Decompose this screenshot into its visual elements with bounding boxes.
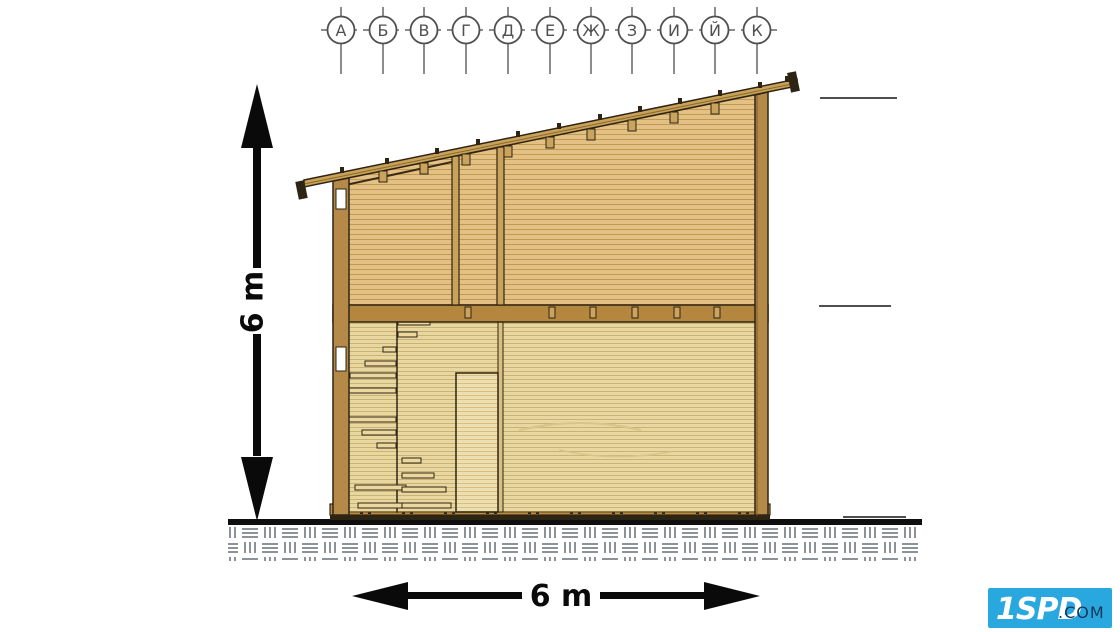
stair-tread bbox=[362, 430, 396, 435]
left-wall-window-upper bbox=[336, 189, 346, 209]
dimension-shaft bbox=[253, 146, 261, 268]
arrow-down-icon bbox=[241, 457, 273, 521]
grid-label: Е bbox=[545, 21, 555, 40]
stair-tread bbox=[348, 417, 396, 422]
stair-tread bbox=[402, 503, 451, 508]
lower-wall-panel bbox=[349, 322, 755, 512]
stair-tread bbox=[398, 332, 417, 337]
dimension-shaft bbox=[253, 334, 261, 456]
stair-tread bbox=[402, 473, 434, 478]
ground-hatch bbox=[228, 527, 922, 561]
stair-tread bbox=[402, 458, 421, 463]
grid-label: З bbox=[627, 21, 637, 40]
stair-tread bbox=[365, 361, 396, 366]
stair-tread bbox=[347, 388, 396, 393]
stair-tread bbox=[402, 487, 446, 492]
grid-marker-zh: Ж bbox=[578, 7, 605, 74]
grid-label: И bbox=[668, 21, 680, 40]
logo-suffix-text: .COM bbox=[1058, 603, 1105, 622]
grid-label: К bbox=[751, 21, 763, 40]
horizontal-dimension: 6 m bbox=[352, 579, 760, 614]
grid-label: Ж bbox=[582, 21, 599, 40]
dimension-shaft bbox=[600, 592, 706, 599]
arrow-right-icon bbox=[704, 582, 760, 610]
grid-axis-row: А Б В Г Д Е Ж bbox=[321, 7, 777, 74]
grid-label: Б bbox=[378, 21, 389, 40]
grid-label: Д bbox=[502, 21, 515, 40]
grid-marker-v: В bbox=[411, 7, 438, 74]
ground bbox=[228, 519, 922, 561]
upper-wall-middle-panel bbox=[459, 148, 497, 305]
stair-tread bbox=[358, 503, 406, 508]
right-eave-cap bbox=[787, 71, 800, 92]
height-dimension-label: 6 m bbox=[236, 271, 271, 334]
grid-label: Й bbox=[709, 21, 721, 40]
grid-marker-g: Г bbox=[453, 7, 480, 74]
stair-tread bbox=[383, 347, 396, 352]
building-section bbox=[295, 71, 800, 520]
interior-post-right bbox=[497, 147, 504, 305]
grid-marker-e: Е bbox=[537, 7, 564, 74]
arrow-left-icon bbox=[352, 582, 408, 610]
upper-wall-left-panel bbox=[349, 157, 452, 305]
grid-marker-a: А bbox=[328, 7, 355, 74]
width-dimension-label: 6 m bbox=[530, 579, 593, 614]
stair-tread bbox=[377, 443, 396, 448]
stair-tread bbox=[355, 485, 406, 490]
door-opening bbox=[456, 373, 498, 512]
grid-marker-k: К bbox=[744, 7, 771, 74]
grid-marker-i: И bbox=[661, 7, 688, 74]
grid-marker-d: Д bbox=[495, 7, 522, 74]
section-drawing: А Б В Г Д Е Ж bbox=[0, 0, 1120, 632]
base-sill bbox=[330, 515, 770, 520]
grid-label: В bbox=[419, 21, 430, 40]
grid-label: Г bbox=[461, 21, 471, 40]
logo-watermark: 1SPD .COM bbox=[988, 588, 1112, 628]
grid-marker-z: З bbox=[619, 7, 646, 74]
dimension-shaft bbox=[406, 592, 522, 599]
grid-marker-b: Б bbox=[370, 7, 397, 74]
interior-post-left bbox=[452, 156, 459, 305]
grid-marker-ikr: Й bbox=[702, 7, 729, 74]
grid-label: А bbox=[336, 21, 347, 40]
arrow-up-icon bbox=[241, 84, 273, 148]
vertical-dimension: 6 m bbox=[236, 84, 274, 521]
level-marker-lines bbox=[819, 98, 906, 517]
stair-tread bbox=[350, 373, 396, 378]
drawing-canvas: А Б В Г Д Е Ж bbox=[0, 0, 1120, 632]
left-wall-window-lower bbox=[336, 347, 346, 371]
